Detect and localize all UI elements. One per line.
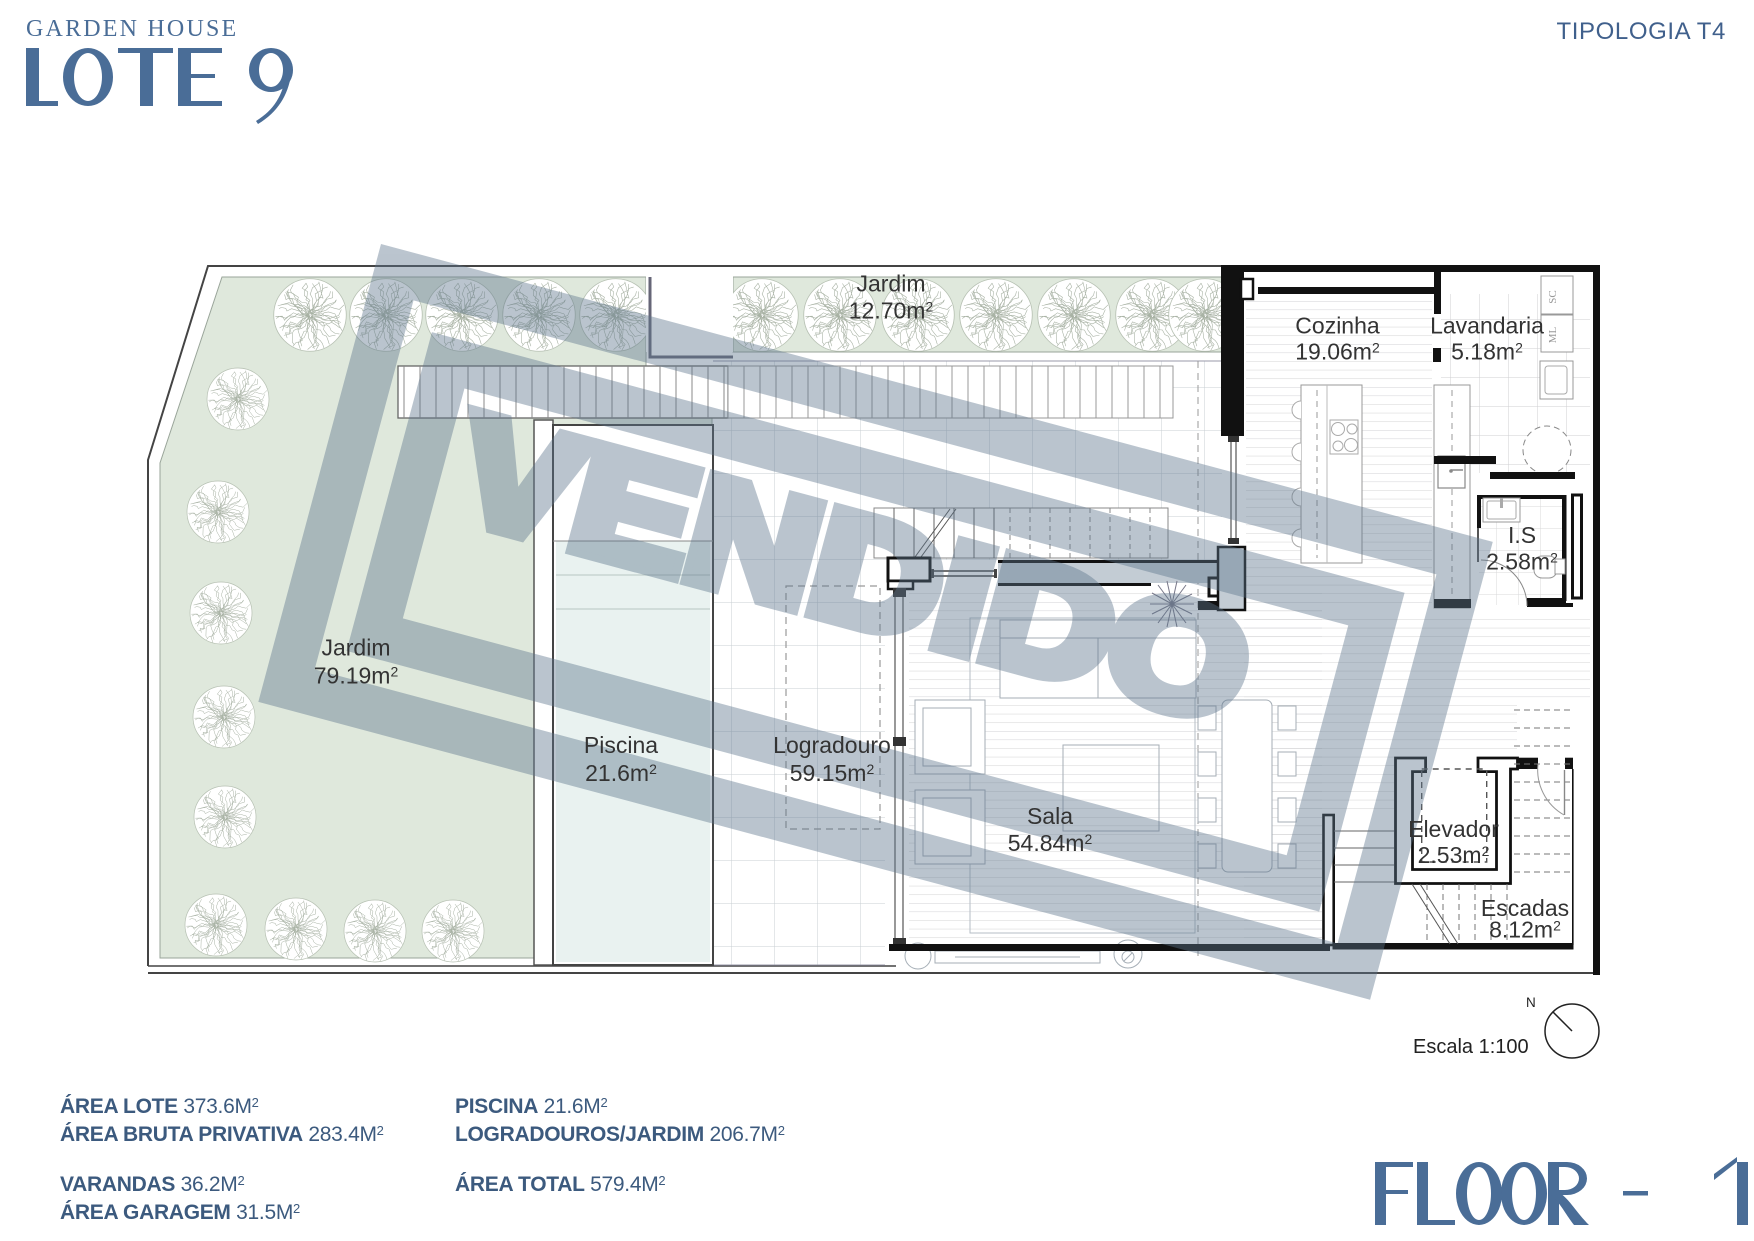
svg-text:Cozinha: Cozinha — [1295, 313, 1380, 339]
svg-text:59.15m2: 59.15m2 — [790, 760, 875, 786]
svg-text:SC: SC — [1547, 290, 1559, 303]
svg-text:ML: ML — [1547, 326, 1559, 343]
svg-text:21.6m2: 21.6m2 — [585, 760, 657, 786]
svg-text:Logradouro: Logradouro — [773, 732, 891, 758]
svg-text:19.06m2: 19.06m2 — [1295, 339, 1380, 365]
svg-text:Jardim: Jardim — [321, 635, 390, 661]
svg-text:79.19m2: 79.19m2 — [314, 663, 399, 689]
svg-text:8.12m2: 8.12m2 — [1489, 917, 1561, 943]
svg-text:Piscina: Piscina — [584, 732, 658, 758]
svg-text:54.84m2: 54.84m2 — [1008, 830, 1093, 856]
svg-text:Escala 1:100: Escala 1:100 — [1413, 1036, 1529, 1058]
svg-text:2.58m2: 2.58m2 — [1486, 549, 1558, 575]
svg-text:5.18m2: 5.18m2 — [1451, 339, 1523, 365]
svg-text:N: N — [1526, 995, 1536, 1010]
svg-text:Jardim: Jardim — [856, 271, 925, 297]
svg-text:12.70m2: 12.70m2 — [849, 298, 934, 324]
svg-text:Elevador: Elevador — [1408, 816, 1499, 842]
svg-text:I.S: I.S — [1508, 522, 1536, 548]
svg-text:2.53m2: 2.53m2 — [1418, 842, 1490, 868]
svg-text:Lavandaria: Lavandaria — [1430, 313, 1544, 339]
svg-text:Sala: Sala — [1027, 803, 1073, 829]
